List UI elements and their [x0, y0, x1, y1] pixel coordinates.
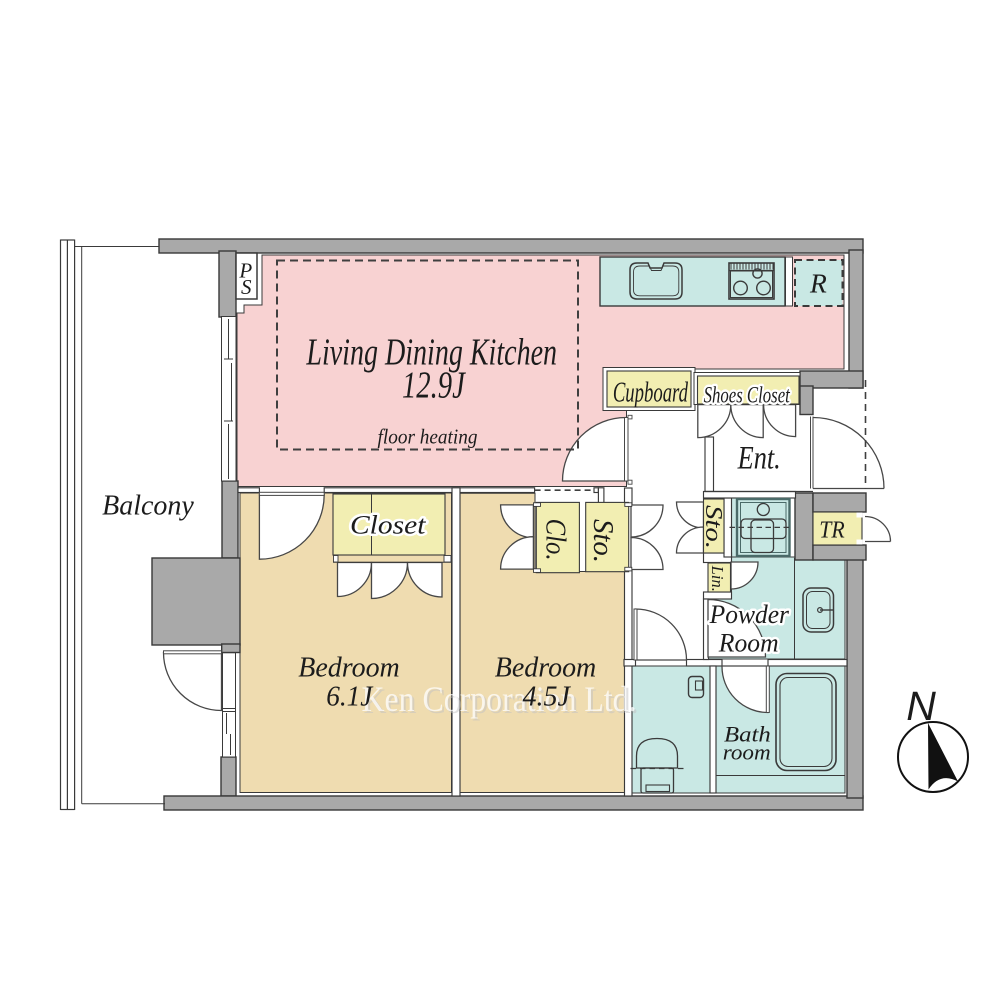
svg-text:Balcony: Balcony [102, 491, 194, 522]
svg-text:R: R [809, 268, 827, 299]
svg-text:Cupboard: Cupboard [613, 378, 688, 409]
svg-text:Closet: Closet [350, 511, 427, 540]
svg-text:Lin.: Lin. [708, 565, 727, 592]
svg-text:Clo.: Clo. [540, 519, 572, 561]
svg-text:Bedroom: Bedroom [298, 652, 400, 683]
svg-text:N: N [906, 683, 936, 729]
svg-text:Ent.: Ent. [737, 441, 781, 476]
svg-text:Room: Room [718, 628, 779, 657]
svg-text:Shoes Closet: Shoes Closet [704, 383, 791, 408]
svg-text:floor heating: floor heating [378, 426, 478, 449]
svg-text:Sto.: Sto. [587, 519, 618, 563]
svg-text:Sto.: Sto. [701, 505, 728, 549]
svg-text:TR: TR [819, 516, 844, 543]
svg-text:4.5J: 4.5J [522, 682, 571, 713]
svg-text:Powder: Powder [709, 600, 790, 630]
svg-text:6.1J: 6.1J [326, 680, 374, 711]
svg-text:Ken Corporation Ltd.: Ken Corporation Ltd. [361, 680, 636, 719]
svg-text:12.9J: 12.9J [402, 365, 467, 407]
svg-text:Bedroom: Bedroom [495, 652, 597, 683]
svg-text:S: S [241, 275, 252, 299]
svg-text:room: room [723, 740, 771, 765]
